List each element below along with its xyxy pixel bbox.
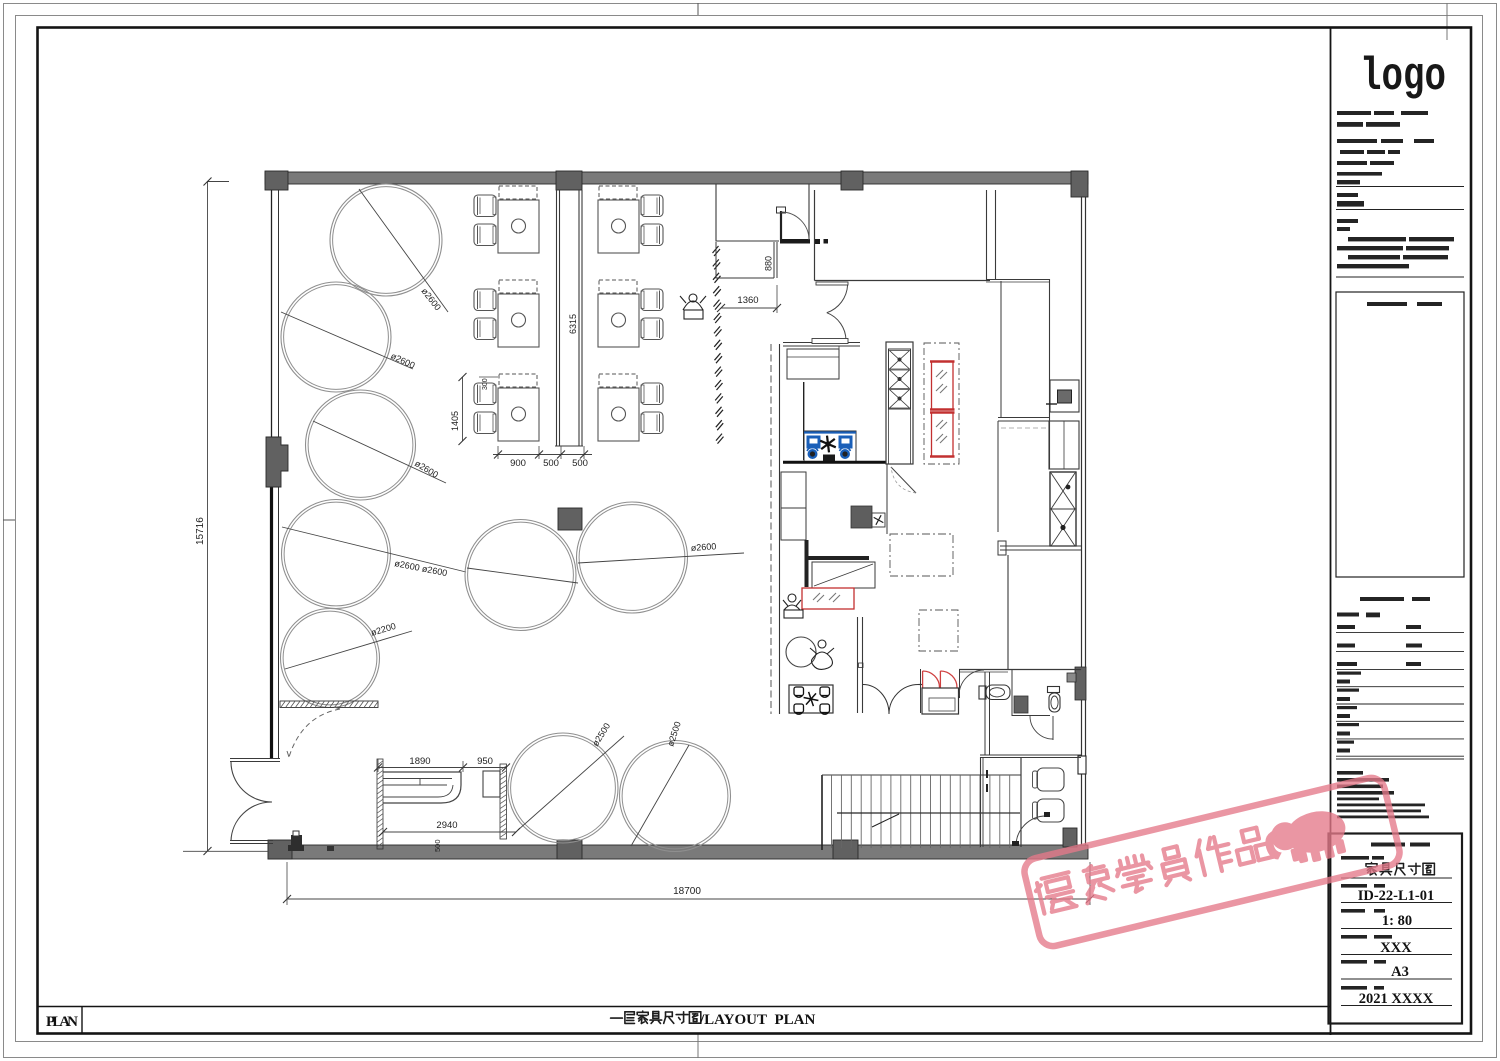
svg-text:ID-22-L1-01: ID-22-L1-01	[1358, 888, 1435, 904]
svg-text:880: 880	[764, 256, 774, 271]
svg-text:2021 XXXX: 2021 XXXX	[1359, 991, 1434, 1007]
svg-text:500: 500	[543, 458, 559, 469]
svg-text:A3: A3	[1391, 964, 1409, 980]
svg-text:logo: logo	[1360, 51, 1446, 103]
svg-text:18700: 18700	[673, 886, 701, 897]
svg-text:1890: 1890	[409, 756, 430, 767]
svg-text:950: 950	[477, 756, 493, 767]
svg-text:PLAN: PLAN	[46, 1014, 78, 1030]
svg-text:2940: 2940	[436, 820, 457, 831]
svg-text:900: 900	[510, 458, 526, 469]
svg-text:1: 80: 1: 80	[1382, 913, 1412, 929]
svg-text:300: 300	[482, 378, 489, 390]
svg-text:500: 500	[433, 839, 442, 852]
svg-text:/LAYOUT PLAN: /LAYOUT PLAN	[699, 1012, 815, 1028]
svg-text:500: 500	[572, 458, 588, 469]
svg-text:XXX: XXX	[1380, 940, 1412, 956]
svg-text:1405: 1405	[450, 411, 460, 431]
svg-text:ø2600: ø2600	[690, 541, 716, 553]
svg-text:15716: 15716	[195, 517, 206, 545]
svg-text:1360: 1360	[737, 295, 758, 306]
svg-text:6315: 6315	[568, 314, 578, 334]
